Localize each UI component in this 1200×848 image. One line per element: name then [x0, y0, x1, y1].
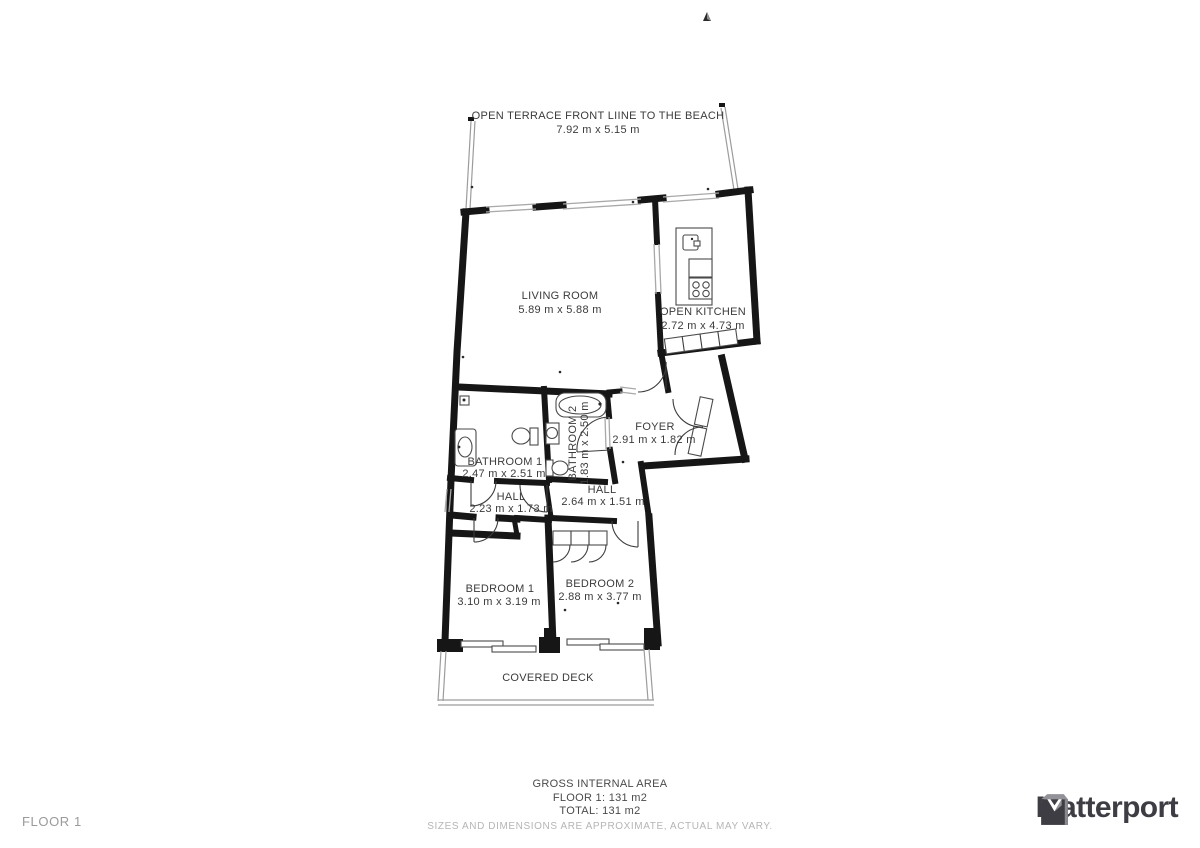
bathroom1-dims: 2.47 m x 2.51 m — [462, 468, 545, 480]
brand-logo: Matterport — [1036, 791, 1178, 825]
wardrobe — [553, 531, 607, 562]
kitchen-fixtures — [664, 228, 737, 354]
kitchen-sink-icon — [683, 235, 700, 250]
bedroom1-label: BEDROOM 1 — [466, 583, 535, 595]
terrace-label: OPEN TERRACE FRONT LIINE TO THE BEACH — [472, 110, 725, 122]
legend-title: GROSS INTERNAL AREA — [0, 778, 1200, 792]
stove-icon — [689, 278, 712, 299]
legend-total: TOTAL: 131 m2 — [0, 805, 1200, 819]
bedroom2-label: BEDROOM 2 — [566, 578, 635, 590]
deck-label: COVERED DECK — [502, 672, 594, 684]
legend-floor: FLOOR 1: 131 m2 — [0, 792, 1200, 806]
sink-icon — [546, 423, 559, 444]
bathroom1-label: BATHROOM 1 — [468, 456, 543, 468]
matterport-logo-icon — [1036, 791, 1073, 828]
kitchen-label: OPEN KITCHEN — [660, 306, 746, 318]
counter — [689, 259, 712, 277]
toilet-icon — [546, 460, 568, 476]
floor-selector-label[interactable]: FLOOR 1 — [22, 814, 82, 829]
area-legend: GROSS INTERNAL AREA FLOOR 1: 131 m2 TOTA… — [0, 778, 1200, 833]
foyer-label: FOYER — [635, 421, 674, 433]
living-room-dims: 5.89 m x 5.88 m — [518, 304, 601, 316]
floor-plan-canvas: OPEN TERRACE FRONT LIINE TO THE BEACH 7.… — [0, 0, 1200, 848]
bedroom2-dims: 2.88 m x 3.77 m — [558, 591, 641, 603]
hall1-label: HALL — [497, 491, 526, 503]
living-room-label: LIVING ROOM — [522, 290, 599, 302]
bathroom2-label: BATHROOM 2 — [567, 406, 579, 481]
foyer-dims: 2.91 m x 1.82 m — [612, 434, 695, 446]
hall1-dims: 2.23 m x 1.73 m — [469, 503, 552, 515]
shower-icon — [460, 396, 469, 405]
kitchen-dims: 2.72 m x 4.73 m — [661, 320, 744, 332]
toilet-icon — [512, 428, 538, 445]
hall2-dims: 2.64 m x 1.51 m — [561, 496, 644, 508]
bedroom1-dims: 3.10 m x 3.19 m — [457, 596, 540, 608]
terrace-dims: 7.92 m x 5.15 m — [556, 124, 639, 136]
hall2-label: HALL — [588, 484, 617, 496]
north-indicator-icon — [703, 12, 711, 21]
bathroom2-dims: 1.83 m x 2.50 m — [579, 401, 591, 484]
legend-disclaimer: SIZES AND DIMENSIONS ARE APPROXIMATE, AC… — [0, 820, 1200, 834]
